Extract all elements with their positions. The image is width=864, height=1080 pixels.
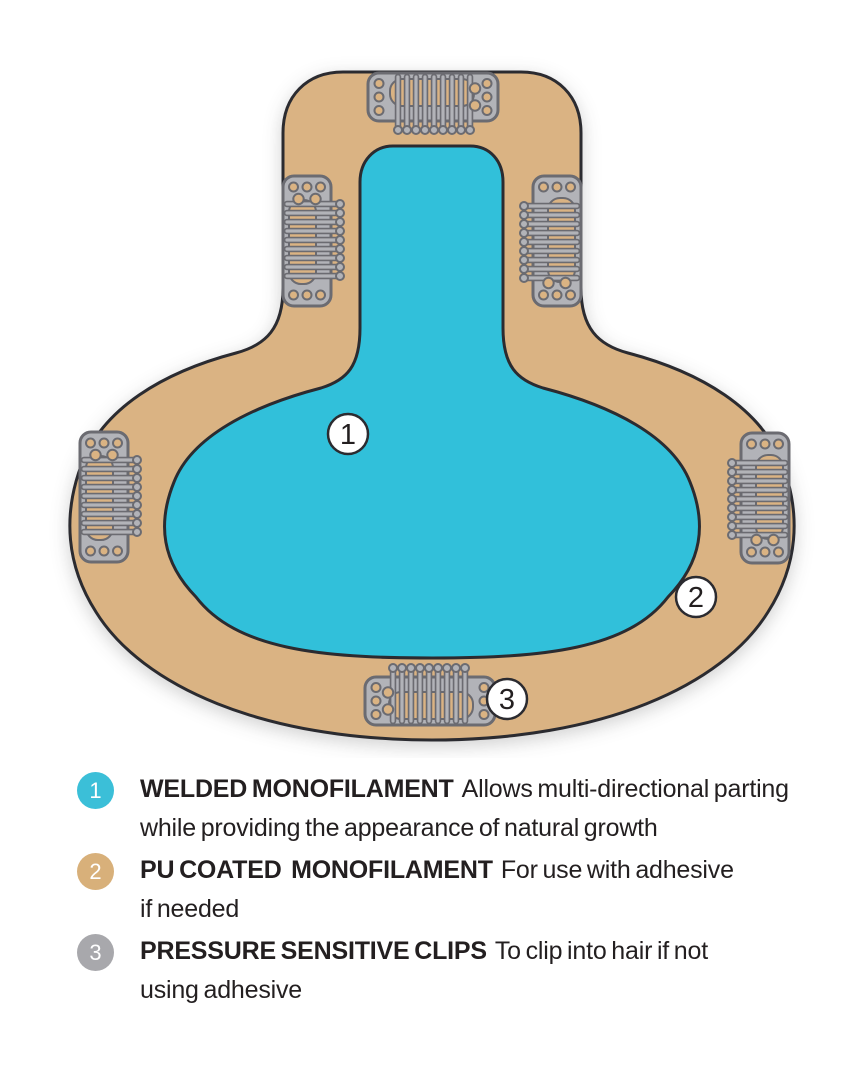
legend-desc-2b: if needed (140, 890, 734, 929)
callout-3: 3 (487, 679, 527, 719)
legend-badge-3-number: 3 (89, 940, 101, 966)
legend-term-2: PU COATED MONOFILAMENT (140, 856, 493, 884)
legend-badge-1-number: 1 (89, 778, 101, 804)
legend-item-pressure-sensitive-clips: 3 PRESSURE SENSITIVE CLIPSTo clip into h… (77, 932, 837, 1010)
legend-badge-1: 1 (77, 772, 114, 809)
legend-desc-3a: To clip into hair if not (495, 937, 708, 965)
callout-3-label: 3 (499, 684, 515, 716)
legend-desc-3b: using adhesive (140, 971, 708, 1010)
legend-badge-2-number: 2 (89, 859, 101, 885)
legend-desc-2a: For use with adhesive (501, 856, 734, 884)
legend-desc-1a: Allows multi-directional parting (462, 775, 789, 803)
callout-1: 1 (328, 414, 368, 454)
legend-term-3: PRESSURE SENSITIVE CLIPS (140, 937, 487, 965)
legend-text-2: PU COATED MONOFILAMENTFor use with adhes… (140, 851, 734, 929)
legend-item-welded-monofilament: 1 WELDED MONOFILAMENTAllows multi-direct… (77, 770, 837, 848)
legend-term-1: WELDED MONOFILAMENT (140, 775, 454, 803)
hairpiece-construction-diagram-page: 1 2 3 1 WELDED MONOFILAMENTAllows multi-… (0, 0, 864, 1080)
legend-badge-3: 3 (77, 934, 114, 971)
hairpiece-base-diagram: 1 2 3 (0, 0, 864, 758)
legend-line: PU COATED MONOFILAMENTFor use with adhes… (140, 851, 734, 890)
callout-1-label: 1 (340, 419, 356, 451)
legend-line: PRESSURE SENSITIVE CLIPSTo clip into hai… (140, 932, 708, 971)
legend-desc-1b: while providing the appearance of natura… (140, 809, 789, 848)
legend: 1 WELDED MONOFILAMENTAllows multi-direct… (77, 770, 837, 1013)
callout-2: 2 (676, 577, 716, 617)
hairpiece-base (70, 72, 794, 740)
legend-item-pu-coated-monofilament: 2 PU COATED MONOFILAMENTFor use with adh… (77, 851, 837, 929)
callout-2-label: 2 (688, 582, 704, 614)
legend-text-3: PRESSURE SENSITIVE CLIPSTo clip into hai… (140, 932, 708, 1010)
legend-line: WELDED MONOFILAMENTAllows multi-directio… (140, 770, 789, 809)
legend-text-1: WELDED MONOFILAMENTAllows multi-directio… (140, 770, 789, 848)
legend-badge-2: 2 (77, 853, 114, 890)
